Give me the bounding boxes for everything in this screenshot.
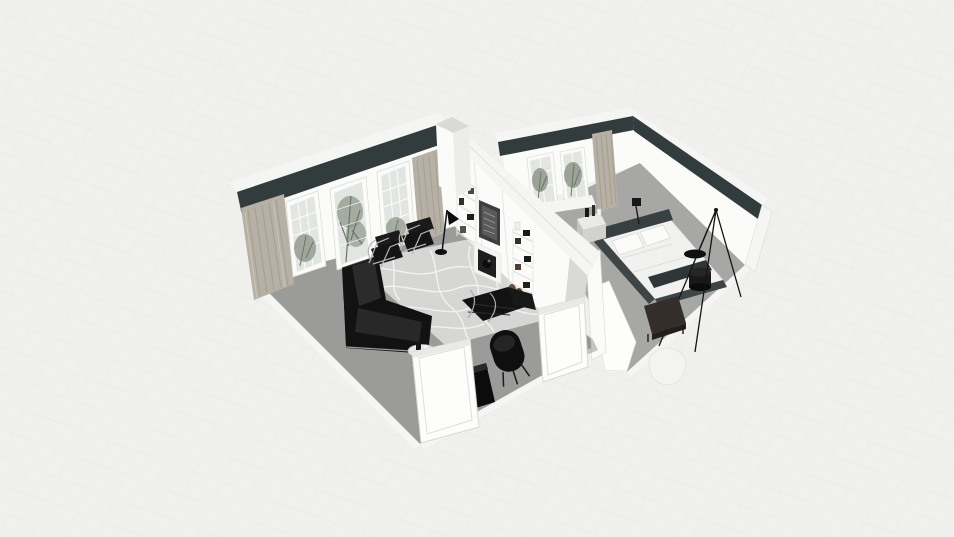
shelf-decor <box>524 256 531 262</box>
lamp-shade <box>684 250 706 259</box>
shelf-books <box>515 264 521 270</box>
chimney-column <box>436 117 471 196</box>
round-side-table[interactable] <box>689 268 711 292</box>
fur-rug[interactable] <box>649 348 686 385</box>
shelf-decor <box>523 230 530 236</box>
apartment-3d-view[interactable] <box>0 0 954 537</box>
design-canvas[interactable] <box>0 0 954 537</box>
decor-item <box>597 209 601 216</box>
decor-item <box>592 205 595 216</box>
door-left[interactable] <box>412 339 479 443</box>
door-right[interactable] <box>538 297 588 382</box>
brass-knob <box>488 260 491 263</box>
shelf-decor <box>467 214 474 220</box>
shelf-books <box>515 238 521 244</box>
decor-item <box>585 208 589 217</box>
shelf-books <box>459 198 464 205</box>
shelf-decor <box>523 282 530 288</box>
white-vase <box>515 222 520 230</box>
living-window-2[interactable] <box>330 177 373 270</box>
shelf-decor <box>460 226 466 233</box>
table-decor <box>416 343 421 350</box>
lamp-base <box>435 249 447 255</box>
